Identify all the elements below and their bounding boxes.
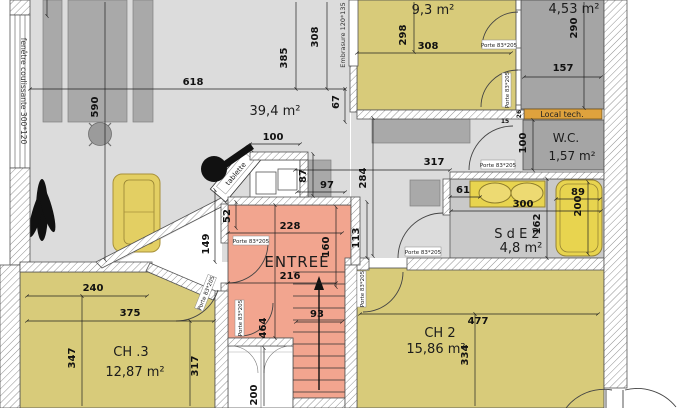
room-label-ch2-area: 15,86 m² — [406, 342, 465, 357]
dim-618: 618 — [183, 77, 204, 88]
dim-113: 113 — [351, 228, 362, 249]
room-label-wc: W.C. — [553, 131, 580, 145]
dim-464: 464 — [258, 318, 269, 339]
dim-15: 15 — [501, 118, 509, 125]
dim-93: 93 — [310, 309, 324, 320]
dim-97: 97 — [320, 180, 334, 191]
dim-477: 477 — [468, 316, 489, 327]
door-label: Porte 83*205 — [360, 270, 366, 307]
room-ch2 — [357, 268, 604, 408]
dim-290: 290 — [569, 18, 580, 39]
room-label-ch3-area: 12,87 m² — [105, 365, 164, 380]
cabinet — [372, 119, 470, 143]
room-label-wc-area: 1,57 m² — [548, 149, 595, 163]
dim-200-closet: 200 — [249, 385, 260, 406]
closet — [228, 346, 293, 408]
floor-plan: tablette — [0, 0, 680, 408]
dim-228: 228 — [280, 221, 301, 232]
cabinet — [410, 180, 440, 206]
dim-308-room: 308 — [418, 41, 439, 52]
room-label-living-area: 39,4 m² — [250, 104, 301, 119]
room-label-ch3: CH .3 — [113, 345, 148, 360]
dim-375: 375 — [120, 308, 141, 319]
dim-157: 157 — [553, 63, 574, 74]
dim-216: 216 — [280, 271, 301, 282]
dim-149: 149 — [201, 234, 212, 255]
room-label-ch2: CH 2 — [424, 326, 455, 341]
dim-240: 240 — [83, 283, 104, 294]
embrasure-label: Embrasure 120*135 — [339, 2, 347, 67]
room-label-bed1-area: 9,3 m² — [412, 3, 455, 18]
door-label: Porte 83*205 — [480, 163, 517, 169]
kitchen-unit — [133, 0, 153, 122]
dim-61: 61 — [456, 185, 470, 196]
dim-284: 284 — [358, 168, 369, 189]
door-label: Porte 83*205 — [481, 43, 518, 49]
door-label: Porte 83*205 — [505, 71, 511, 108]
dim-52: 52 — [222, 209, 233, 223]
kitchen-unit — [43, 0, 62, 122]
double-sink — [470, 181, 545, 207]
door-label: Porte 83*205 — [238, 299, 244, 336]
room-label-dressing-area: 4,53 m² — [549, 2, 600, 17]
dim-200-bath: 200 — [573, 196, 584, 217]
dim-100-desk: 100 — [263, 132, 284, 143]
dim-308-vert: 308 — [310, 27, 321, 48]
dim-26: 26 — [516, 110, 523, 118]
dim-298: 298 — [398, 25, 409, 46]
dim-300: 300 — [513, 199, 534, 210]
chair-icon — [89, 123, 112, 147]
dim-385: 385 — [279, 48, 290, 69]
room-label-local-tech: Local tech. — [540, 110, 583, 119]
floor-plan-page: tablette — [0, 0, 680, 408]
dim-317-hall: 317 — [424, 157, 445, 168]
dim-100-wc: 100 — [518, 133, 529, 154]
room-label-sde2: S d E 2 — [494, 227, 539, 242]
door-label: Porte 83*205 — [405, 250, 442, 256]
embrasure-opening — [349, 0, 358, 66]
window-label: fenêtre coulissante 300*120 — [19, 38, 28, 145]
dim-590: 590 — [90, 97, 101, 118]
door-label: Porte 83*205 — [233, 239, 270, 245]
dim-347: 347 — [67, 348, 78, 369]
dim-87: 87 — [298, 169, 309, 183]
dim-67: 67 — [331, 95, 342, 109]
dim-317-ch3: 317 — [190, 356, 201, 377]
room-label-sde2-area: 4,8 m² — [500, 241, 543, 256]
room-label-entree: ENTREE — [264, 253, 329, 271]
room-ch3 — [20, 272, 215, 408]
